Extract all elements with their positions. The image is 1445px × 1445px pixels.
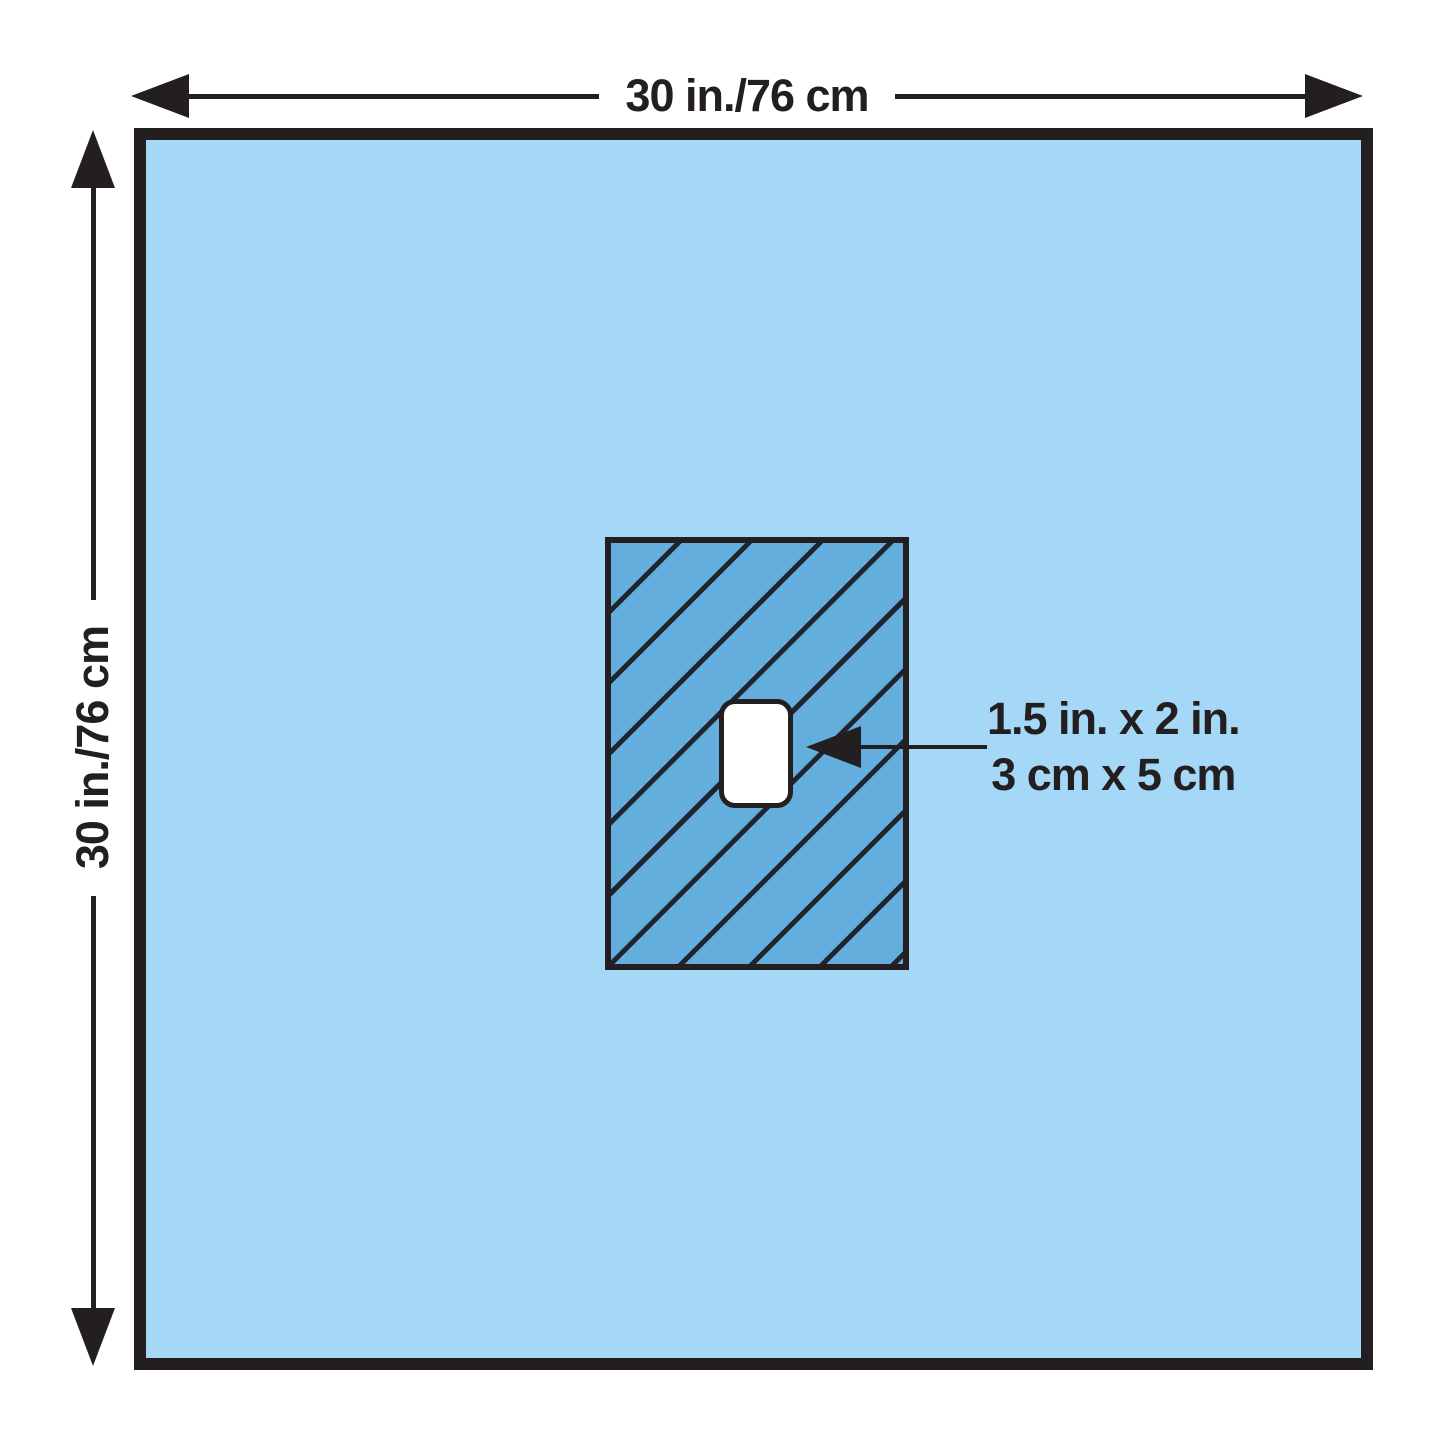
dimension-line bbox=[895, 94, 1305, 99]
dimension-arrowhead-left-icon bbox=[131, 74, 189, 118]
dimension-arrowhead-down-icon bbox=[71, 1308, 115, 1366]
callout-line bbox=[861, 745, 987, 749]
fenestration-callout: 1.5 in. x 2 in. 3 cm x 5 cm bbox=[806, 691, 1240, 803]
dimension-arrowhead-right-icon bbox=[1305, 74, 1363, 118]
height-dimension: 30 in./76 cm bbox=[71, 130, 115, 1366]
width-dimension-label: 30 in./76 cm bbox=[599, 70, 894, 122]
dimension-line bbox=[91, 188, 96, 600]
fenestration-size-label: 1.5 in. x 2 in. 3 cm x 5 cm bbox=[987, 691, 1240, 803]
callout-arrowhead-icon bbox=[806, 726, 861, 768]
dimension-line bbox=[91, 896, 96, 1308]
fenestration-size-line2: 3 cm x 5 cm bbox=[987, 747, 1240, 803]
fenestration-hole bbox=[719, 699, 793, 808]
dimension-line bbox=[189, 94, 599, 99]
diagram-canvas: 30 in./76 cm 30 in./76 cm 1.5 in. x 2 in… bbox=[0, 0, 1445, 1445]
fenestration-size-line1: 1.5 in. x 2 in. bbox=[987, 691, 1240, 747]
height-dimension-label: 30 in./76 cm bbox=[67, 600, 119, 895]
width-dimension: 30 in./76 cm bbox=[131, 74, 1363, 118]
dimension-arrowhead-up-icon bbox=[71, 130, 115, 188]
